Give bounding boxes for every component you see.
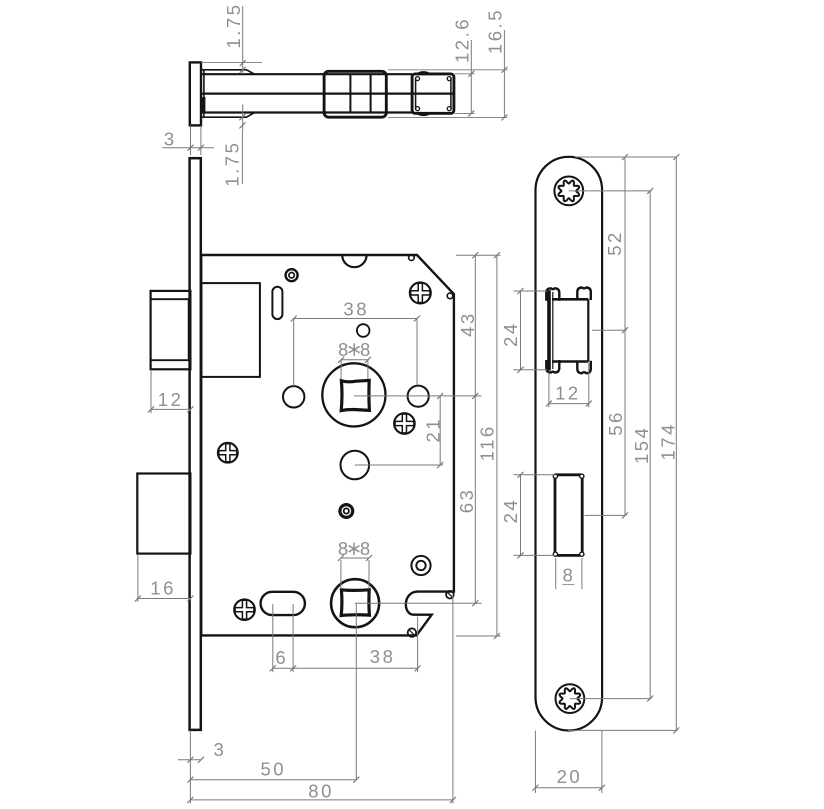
svg-text:16.5: 16.5 bbox=[484, 8, 505, 54]
svg-text:8: 8 bbox=[338, 339, 348, 360]
svg-text:8: 8 bbox=[563, 565, 576, 586]
svg-text:3: 3 bbox=[164, 129, 177, 150]
svg-text:6: 6 bbox=[275, 647, 288, 668]
svg-text:56: 56 bbox=[605, 410, 626, 436]
svg-text:12: 12 bbox=[158, 389, 184, 410]
svg-text:43: 43 bbox=[457, 311, 478, 337]
svg-text:1.75: 1.75 bbox=[221, 141, 242, 187]
svg-text:80: 80 bbox=[308, 781, 334, 802]
svg-text:8: 8 bbox=[360, 339, 370, 360]
svg-text:21: 21 bbox=[422, 417, 443, 443]
svg-text:3: 3 bbox=[214, 739, 227, 760]
svg-text:16: 16 bbox=[150, 578, 176, 599]
svg-text:116: 116 bbox=[476, 424, 497, 461]
svg-text:38: 38 bbox=[370, 646, 396, 667]
svg-text:50: 50 bbox=[261, 759, 287, 780]
svg-text:24: 24 bbox=[500, 321, 521, 347]
svg-text:8: 8 bbox=[360, 538, 370, 559]
svg-text:154: 154 bbox=[631, 426, 652, 464]
svg-text:63: 63 bbox=[456, 488, 477, 514]
svg-text:8: 8 bbox=[338, 538, 348, 559]
svg-text:20: 20 bbox=[557, 766, 583, 787]
svg-text:12.6: 12.6 bbox=[451, 17, 472, 63]
svg-text:52: 52 bbox=[604, 230, 625, 256]
svg-text:12: 12 bbox=[555, 383, 581, 404]
svg-text:38: 38 bbox=[343, 299, 369, 320]
svg-text:1.75: 1.75 bbox=[223, 2, 244, 48]
svg-text:174: 174 bbox=[657, 422, 678, 460]
svg-text:24: 24 bbox=[500, 498, 521, 524]
